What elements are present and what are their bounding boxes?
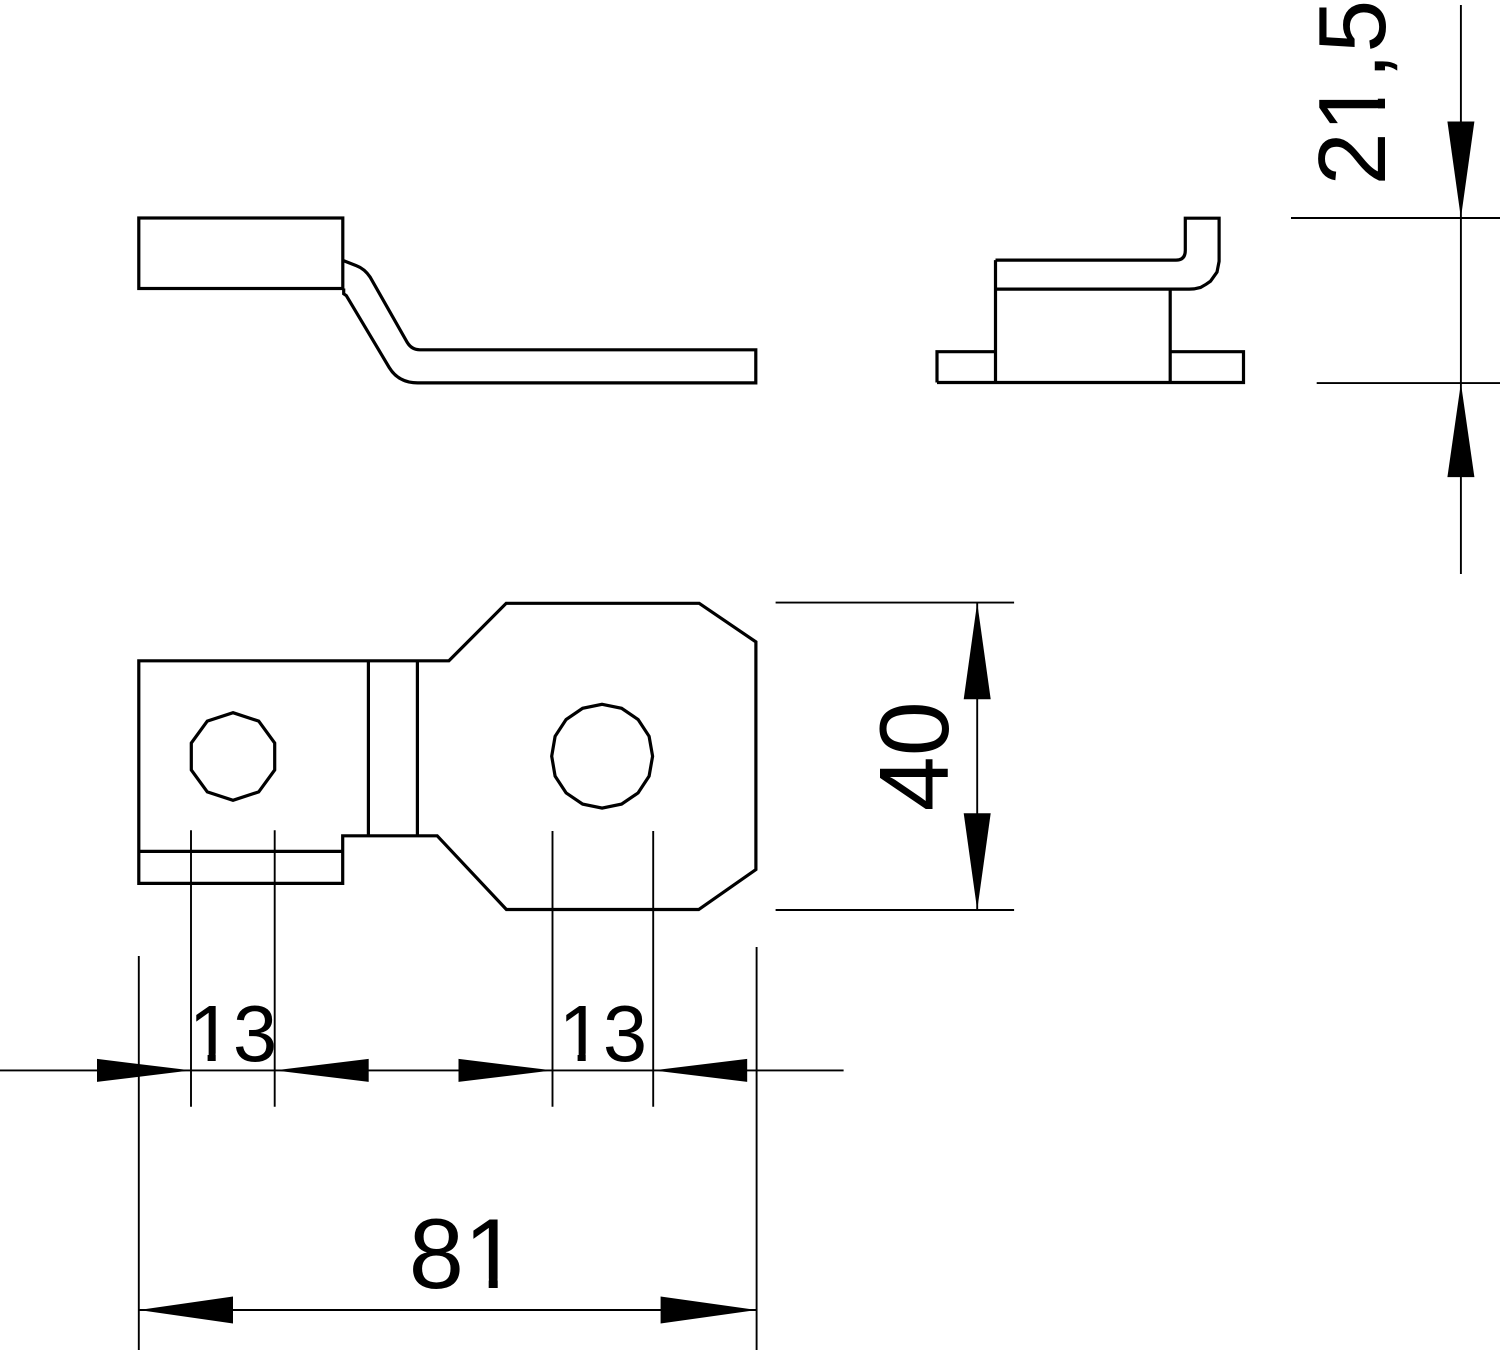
svg-text:40: 40 bbox=[859, 701, 969, 811]
svg-text:21,5: 21,5 bbox=[1300, 0, 1406, 185]
svg-text:81: 81 bbox=[409, 1199, 519, 1310]
svg-text:13: 13 bbox=[189, 989, 278, 1078]
svg-text:13: 13 bbox=[559, 989, 648, 1078]
